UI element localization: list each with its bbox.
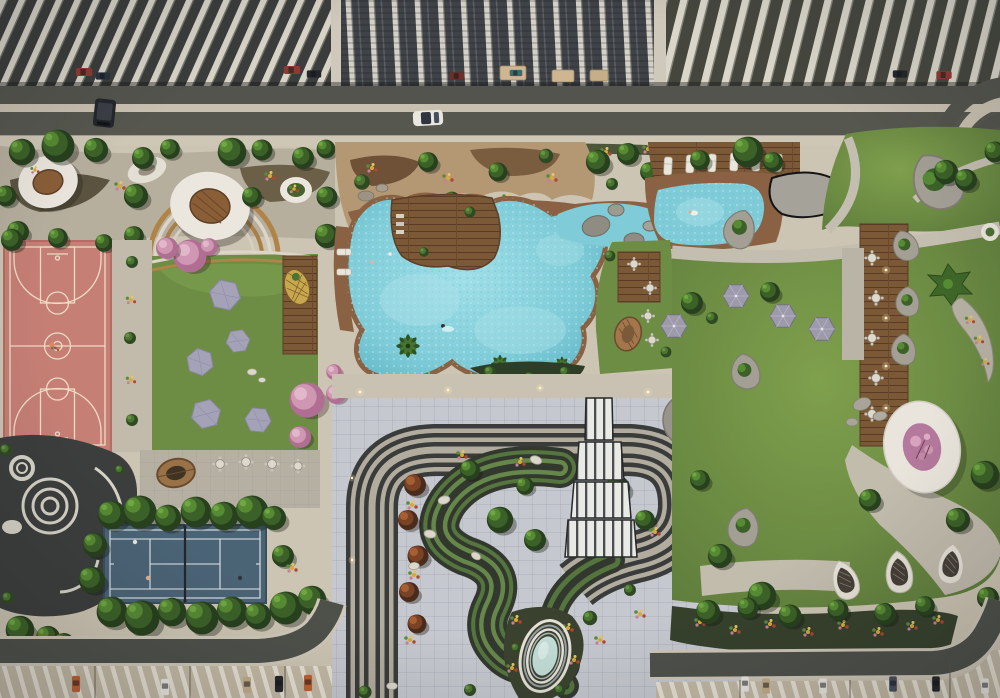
pool-channel (556, 203, 658, 247)
road-lane-upper (0, 86, 1000, 104)
pool-peninsula-deck (391, 194, 500, 269)
basketball-court (1, 228, 115, 470)
road-median (0, 104, 1000, 112)
tower-rooftops (0, 0, 1000, 90)
dining-pergola-deck (618, 252, 660, 302)
pool-south-walk (332, 374, 708, 398)
masterplan-svg (0, 0, 1000, 698)
lawn-wood-deck (280, 256, 317, 354)
tower-roof-left (0, 0, 331, 86)
tennis-court (104, 525, 266, 603)
parking-roofs-west (0, 666, 332, 698)
pool-side-dining (596, 240, 676, 374)
stage-pad (842, 248, 864, 360)
masterplan-rendering (0, 0, 1000, 698)
road-lane-lower (0, 112, 1000, 136)
van-on-road (93, 98, 117, 128)
pod-planter (280, 177, 312, 203)
white-pod-planter (981, 223, 999, 241)
seating-terrace (140, 450, 320, 508)
car-on-road (413, 110, 444, 127)
court-side-path (112, 240, 152, 452)
